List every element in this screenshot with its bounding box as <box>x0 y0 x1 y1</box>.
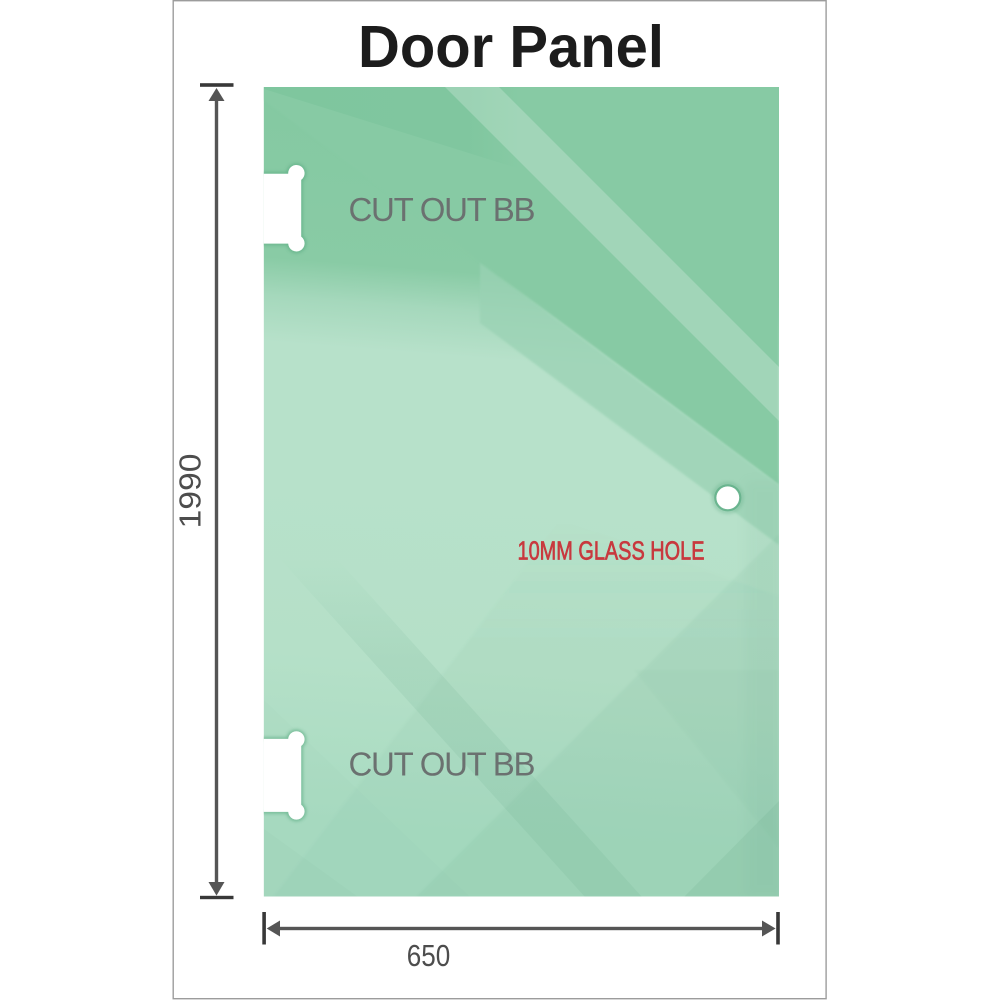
svg-text:10MM GLASS HOLE: 10MM GLASS HOLE <box>518 536 705 566</box>
svg-text:CUT OUT BB: CUT OUT BB <box>349 746 536 783</box>
svg-text:Door Panel: Door Panel <box>358 14 664 80</box>
svg-text:1990: 1990 <box>173 454 207 529</box>
svg-text:650: 650 <box>407 939 451 973</box>
svg-text:CUT OUT BB: CUT OUT BB <box>349 191 536 228</box>
